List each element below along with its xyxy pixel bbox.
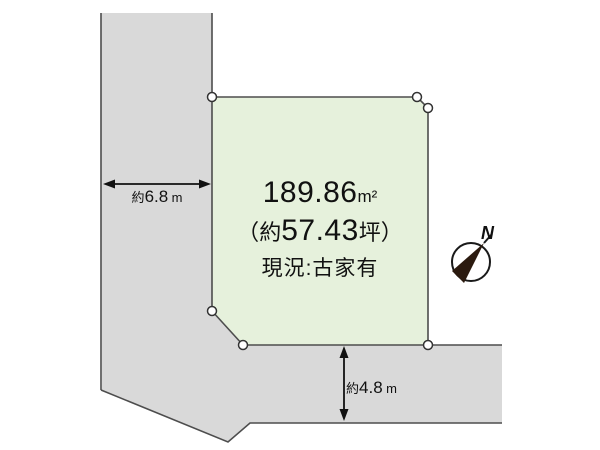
boundary-point — [413, 93, 422, 102]
left-road-width-label: 約6.8 m — [103, 187, 211, 207]
north-label: N — [481, 223, 494, 244]
tsubo-unit: 坪 — [359, 220, 381, 245]
plot-tsubo-line: （約57.43坪） — [212, 214, 428, 252]
left-road-width-unit: m — [172, 190, 183, 205]
left-road-width-value: 6.8 — [145, 187, 169, 206]
boundary-point — [424, 104, 433, 113]
boundary-point — [239, 341, 248, 350]
plot-info-text: 189.86m² （約57.43坪） 現況:古家有 — [212, 176, 428, 285]
bottom-road-width-value: 4.8 — [359, 378, 383, 397]
tsubo-approx: 約 — [259, 220, 281, 245]
bottom-road-width-approx: 約 — [346, 381, 359, 396]
boundary-point — [208, 307, 217, 316]
plot-tsubo-value: 57.43 — [281, 214, 359, 247]
tsubo-close-paren: ） — [381, 220, 403, 245]
plot-area-line: 189.86m² — [212, 176, 428, 214]
bottom-road-width-label: 約4.8 m — [346, 378, 397, 398]
boundary-point — [424, 341, 433, 350]
bottom-road-width-unit: m — [386, 381, 397, 396]
plot-area-unit: m² — [357, 187, 377, 206]
site-plan-canvas: 189.86m² （約57.43坪） 現況:古家有 約6.8 m 約4.8 m … — [0, 0, 600, 450]
plot-area-value: 189.86 — [263, 176, 358, 209]
left-road-width-approx: 約 — [132, 190, 145, 205]
boundary-point — [208, 93, 217, 102]
tsubo-open-paren: （ — [237, 220, 259, 245]
plot-status-line: 現況:古家有 — [212, 252, 428, 285]
